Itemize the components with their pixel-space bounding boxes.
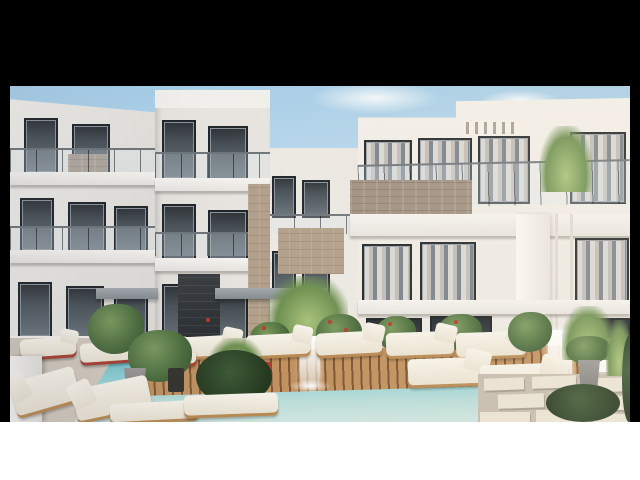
sunlight-overlay [10, 86, 630, 422]
architectural-render-photo [10, 86, 630, 422]
bottom-white-bar [0, 422, 640, 480]
screenshot-stage [0, 0, 640, 480]
